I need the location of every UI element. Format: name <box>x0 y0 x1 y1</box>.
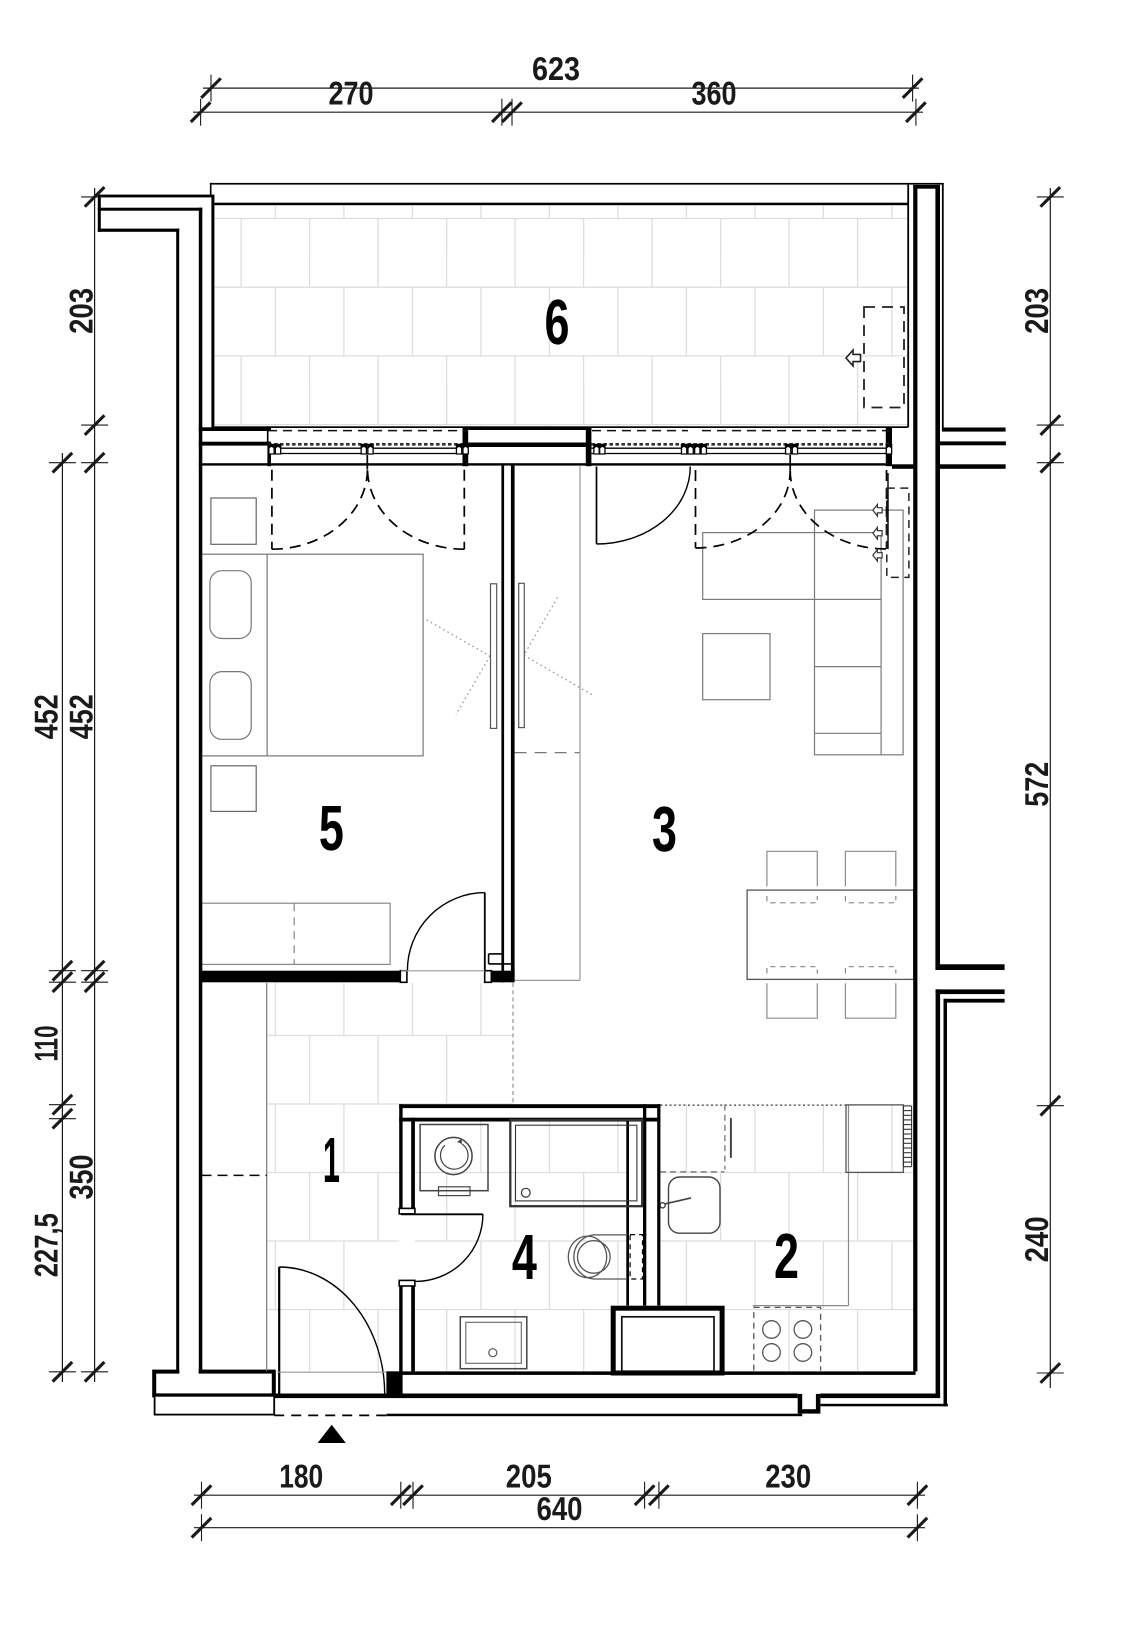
svg-text:180: 180 <box>279 1457 323 1494</box>
svg-text:5: 5 <box>319 792 344 864</box>
svg-text:110: 110 <box>28 1026 65 1062</box>
svg-text:4: 4 <box>512 1221 537 1293</box>
svg-text:452: 452 <box>63 694 100 739</box>
svg-text:640: 640 <box>537 1490 583 1527</box>
svg-text:6: 6 <box>545 286 570 358</box>
svg-text:270: 270 <box>329 74 374 111</box>
svg-text:203: 203 <box>63 288 100 334</box>
svg-text:203: 203 <box>1018 288 1055 334</box>
svg-text:1: 1 <box>323 1124 340 1196</box>
svg-text:350: 350 <box>63 1155 100 1200</box>
svg-text:452: 452 <box>28 694 65 739</box>
svg-text:205: 205 <box>506 1457 552 1494</box>
svg-text:572: 572 <box>1018 762 1055 807</box>
svg-text:3: 3 <box>652 793 677 865</box>
svg-text:230: 230 <box>765 1457 811 1494</box>
svg-text:623: 623 <box>532 50 580 87</box>
svg-text:360: 360 <box>692 74 737 111</box>
svg-text:2: 2 <box>774 1220 799 1292</box>
svg-text:240: 240 <box>1018 1216 1055 1262</box>
svg-text:227,5: 227,5 <box>28 1213 65 1277</box>
